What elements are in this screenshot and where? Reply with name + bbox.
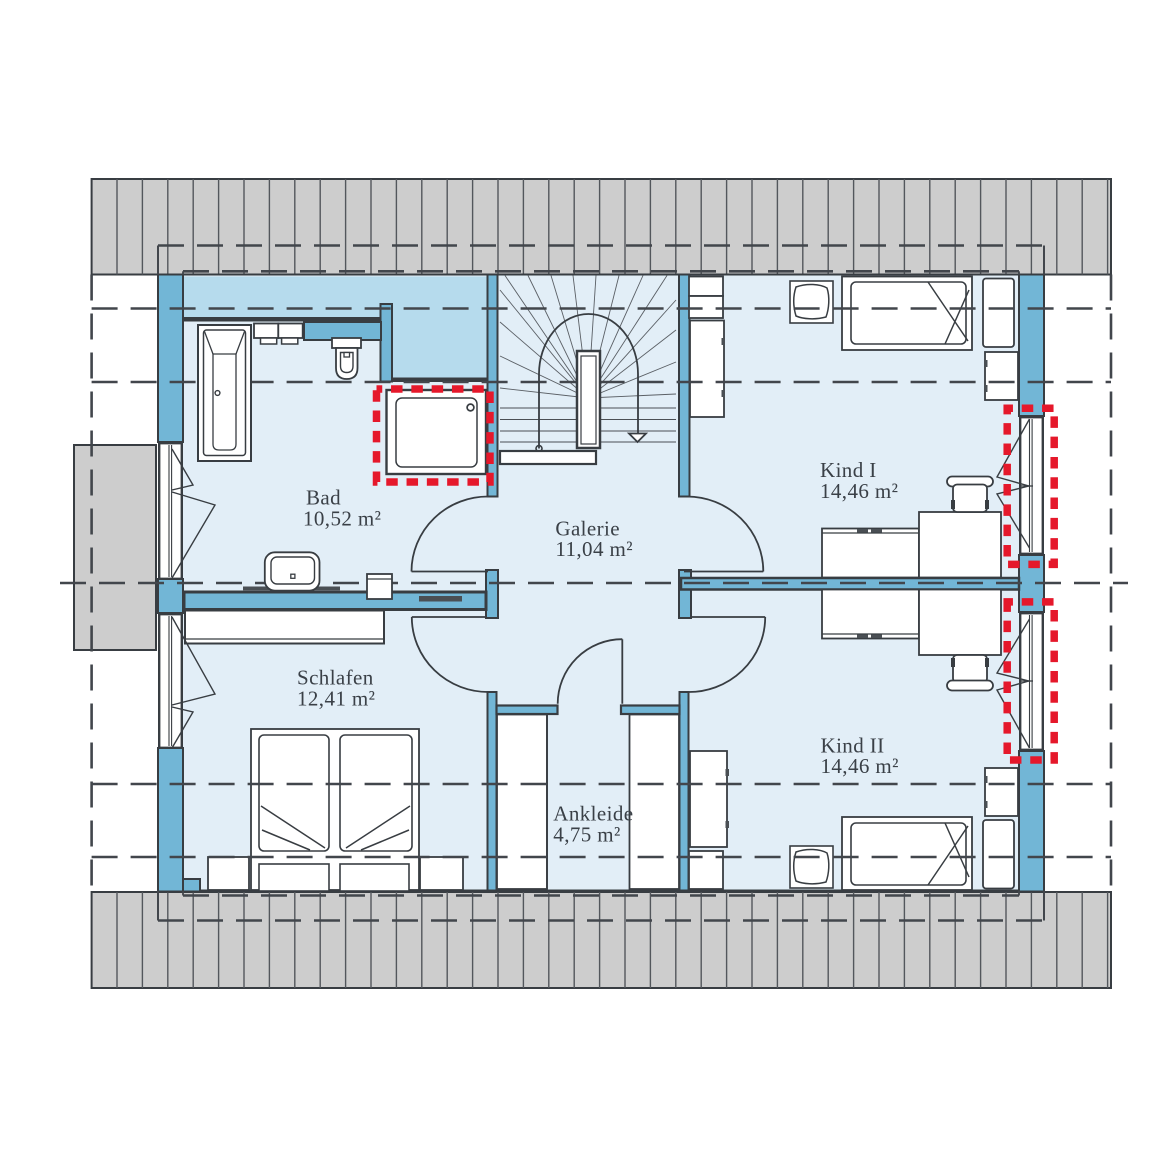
svg-text:12,41 m²: 12,41 m² (297, 686, 375, 710)
svg-text:11,04 m²: 11,04 m² (555, 537, 633, 561)
svg-text:14,46 m²: 14,46 m² (821, 754, 899, 778)
svg-text:10,52 m²: 10,52 m² (303, 506, 381, 530)
svg-text:14,46 m²: 14,46 m² (820, 479, 898, 503)
svg-text:4,75 m²: 4,75 m² (553, 822, 620, 846)
